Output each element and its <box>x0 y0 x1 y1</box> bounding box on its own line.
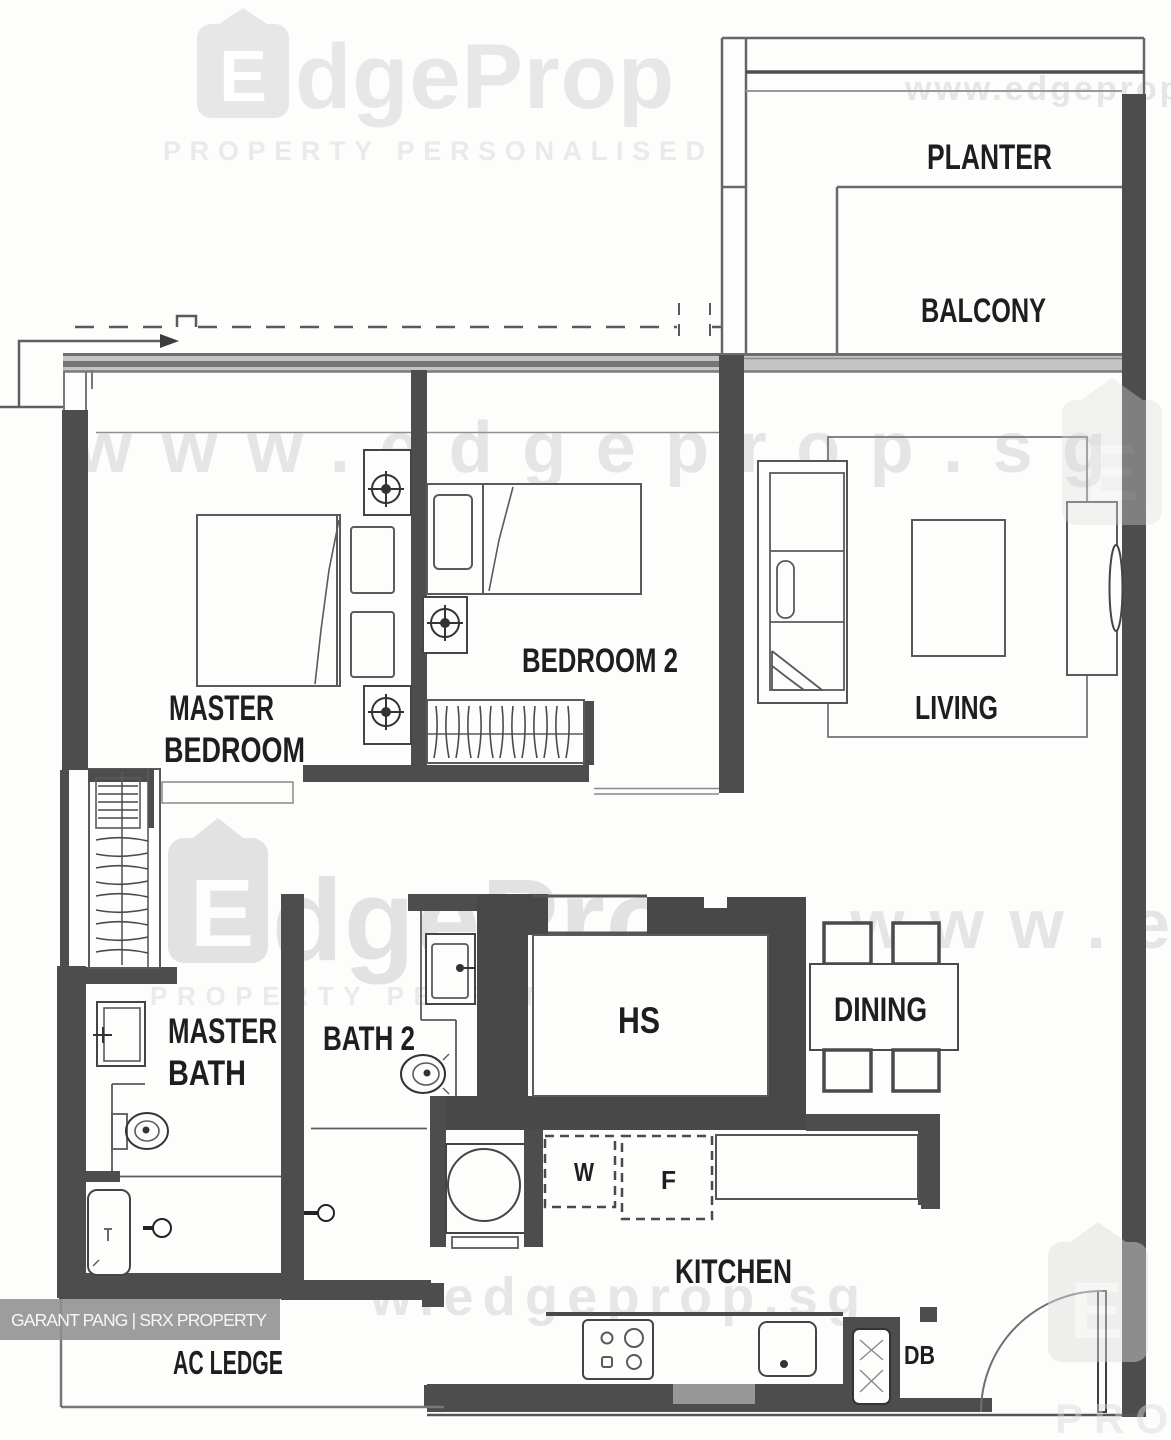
svg-text:HS: HS <box>618 1000 660 1041</box>
svg-text:DINING: DINING <box>834 991 927 1029</box>
svg-text:W: W <box>574 1157 594 1187</box>
svg-text:BALCONY: BALCONY <box>921 292 1046 330</box>
svg-text:E: E <box>219 37 267 117</box>
svg-text:GARANT PANG | SRX PROPERTY: GARANT PANG | SRX PROPERTY <box>11 1310 267 1330</box>
svg-text:AC LEDGE: AC LEDGE <box>173 1344 283 1381</box>
svg-text:E: E <box>1085 428 1138 517</box>
svg-text:MASTER: MASTER <box>168 1012 277 1051</box>
svg-text:E: E <box>1070 1266 1123 1355</box>
svg-text:E: E <box>190 860 254 967</box>
svg-text:KITCHEN: KITCHEN <box>675 1253 792 1291</box>
svg-text:F: F <box>661 1165 676 1195</box>
svg-text:PLANTER: PLANTER <box>927 138 1052 177</box>
svg-text:BEDROOM: BEDROOM <box>164 731 305 770</box>
svg-text:LIVING: LIVING <box>915 689 998 726</box>
svg-text:dgeProp: dgeProp <box>295 26 675 128</box>
svg-text:BEDROOM 2: BEDROOM 2 <box>522 642 678 680</box>
svg-text:MASTER: MASTER <box>169 689 274 728</box>
svg-text:BATH 2: BATH 2 <box>323 1020 415 1058</box>
svg-text:DB: DB <box>904 1340 935 1370</box>
svg-text:PRO: PRO <box>1055 1395 1171 1440</box>
svg-text:BATH: BATH <box>168 1054 246 1093</box>
